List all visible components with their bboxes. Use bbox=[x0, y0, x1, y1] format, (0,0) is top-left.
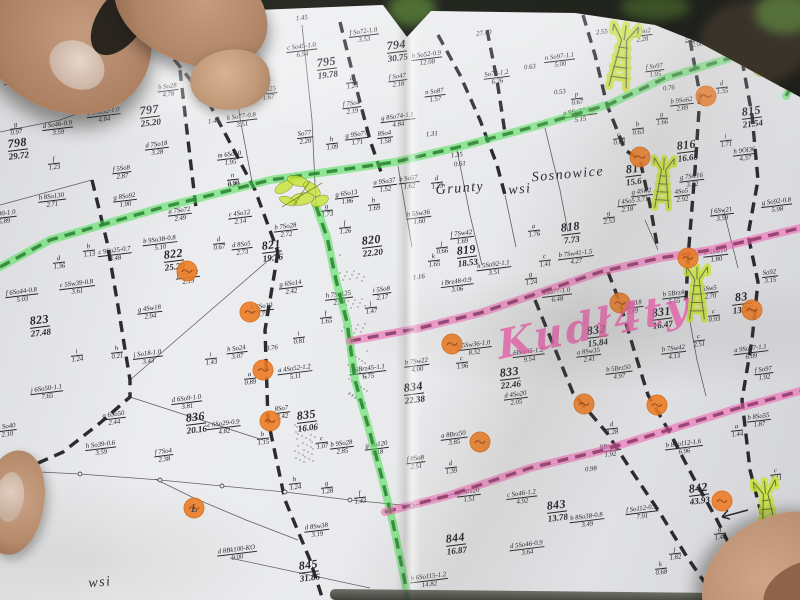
sample-plot-dot bbox=[647, 395, 667, 415]
sample-plot-dot bbox=[712, 491, 732, 511]
sample-plot-dot bbox=[630, 147, 650, 167]
sample-plot-dot bbox=[470, 432, 490, 452]
sample-plot-dot bbox=[574, 394, 594, 414]
green-route-highlight bbox=[316, 206, 408, 597]
map-photo: a So77-0.913.00So85-0.96.84b So62-0.93.7… bbox=[0, 0, 800, 600]
power-pylon-icon bbox=[652, 158, 675, 209]
sample-plot-dot bbox=[253, 360, 273, 380]
sample-plot-dot bbox=[678, 248, 698, 268]
sample-plot-dot bbox=[260, 411, 280, 431]
power-pylon-icon bbox=[605, 24, 638, 89]
sample-plot-dot bbox=[240, 302, 260, 322]
sample-plot-dot bbox=[442, 334, 462, 354]
sample-plot-dot bbox=[177, 261, 197, 281]
foliage-blur bbox=[620, 0, 690, 20]
pen-letter-mark: Ł bbox=[190, 501, 198, 515]
sample-plot-dot bbox=[742, 300, 762, 320]
pen-arrow-mark bbox=[722, 510, 748, 519]
sample-plot-dot bbox=[696, 86, 716, 106]
